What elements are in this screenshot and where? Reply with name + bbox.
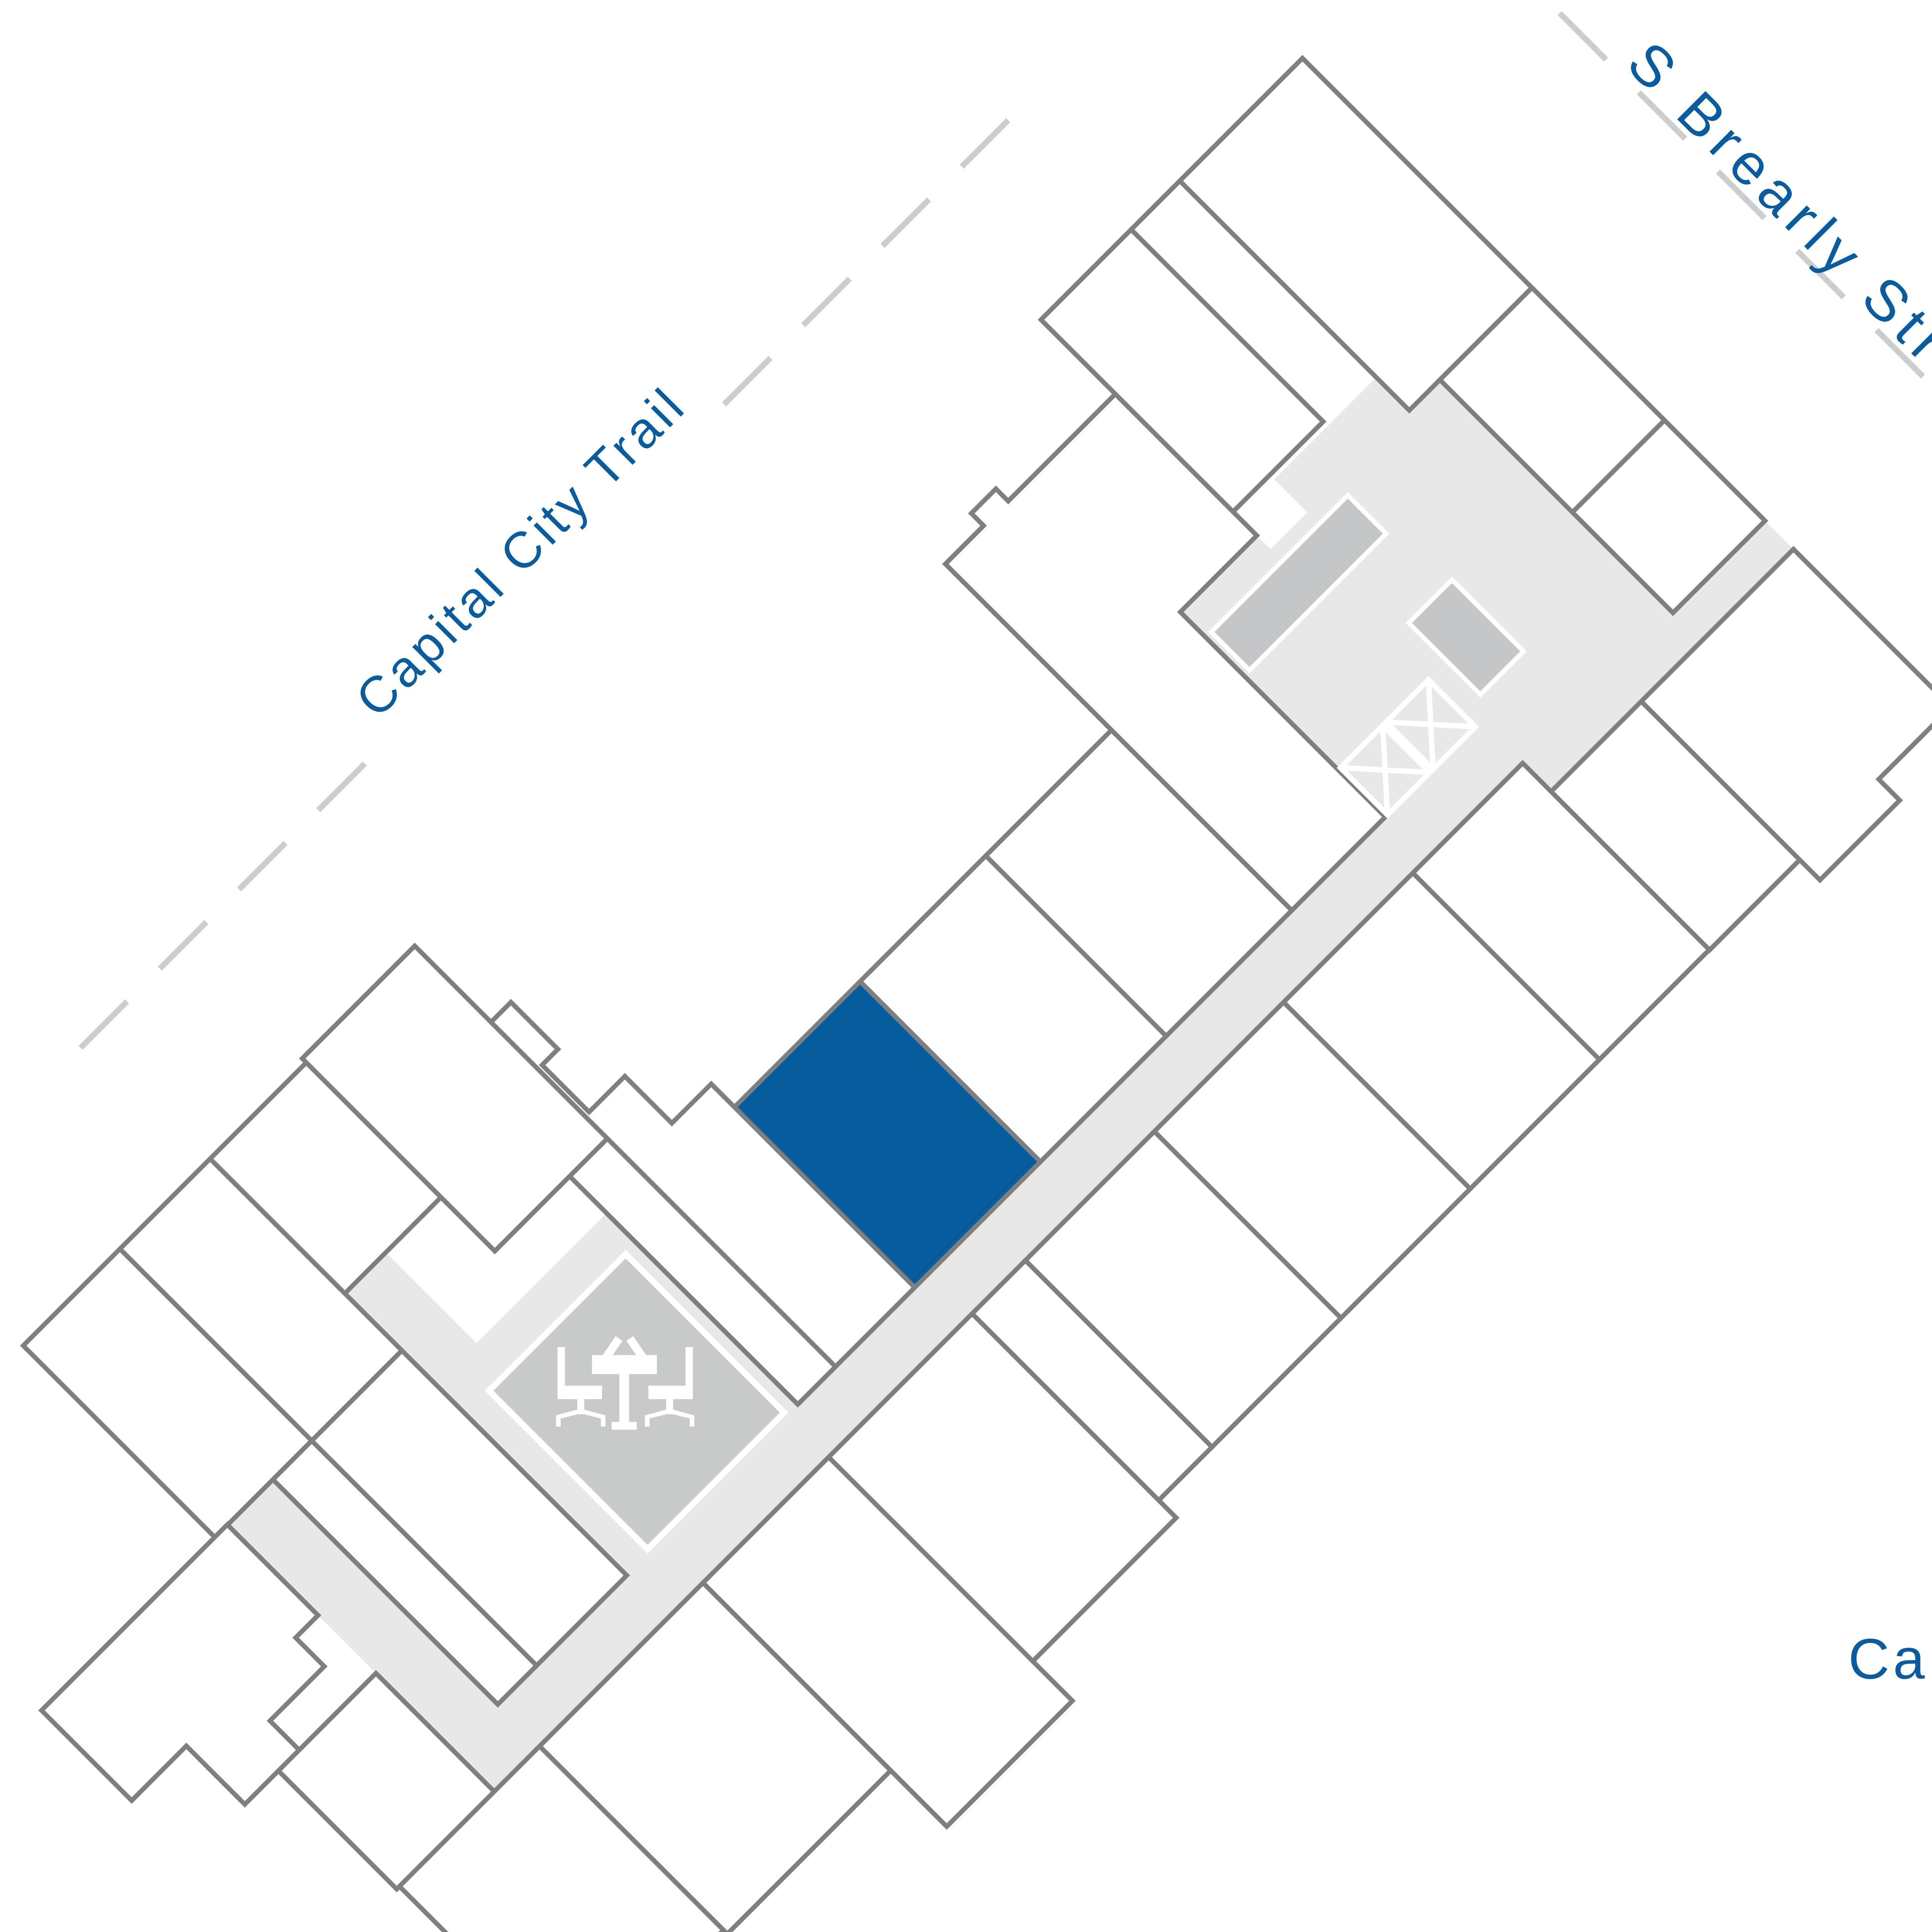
svg-text:Capitol: Capitol: [1848, 1627, 1932, 1691]
